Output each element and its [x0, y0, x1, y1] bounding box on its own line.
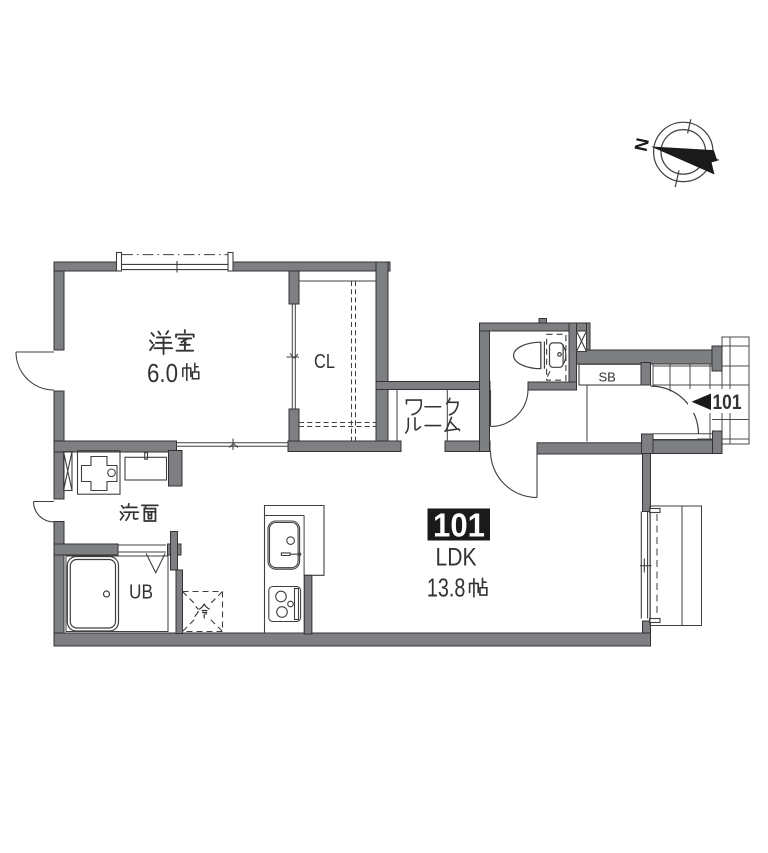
svg-text:CL: CL — [314, 351, 335, 373]
svg-text:101: 101 — [713, 390, 742, 414]
svg-text:SB: SB — [599, 369, 616, 384]
svg-text:13.8: 13.8 — [427, 573, 466, 603]
svg-text:6.0: 6.0 — [147, 358, 178, 388]
svg-text:101: 101 — [433, 507, 485, 544]
svg-text:UB: UB — [129, 582, 153, 604]
svg-text:LDK: LDK — [436, 544, 477, 572]
